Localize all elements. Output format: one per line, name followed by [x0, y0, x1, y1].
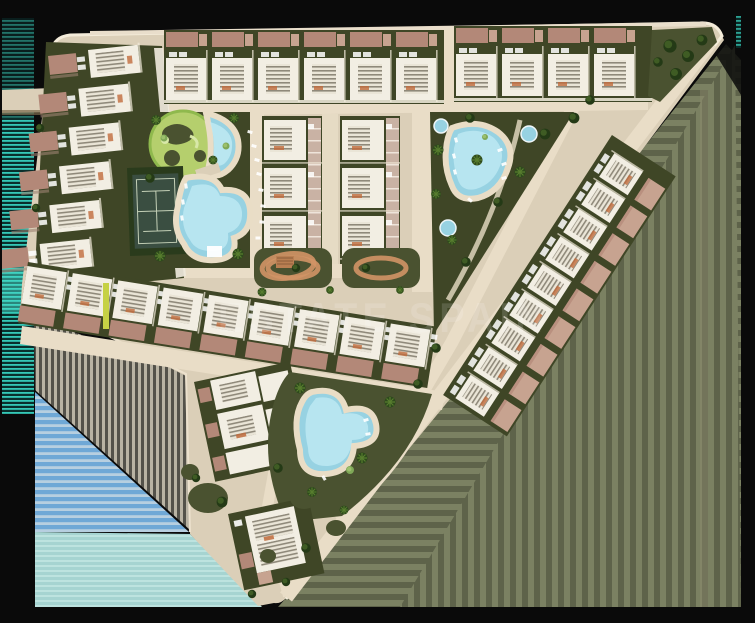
lawn-strip: [103, 283, 109, 329]
round-pool: [521, 126, 537, 142]
apartment-column-2: [340, 116, 400, 264]
round-pool: [434, 119, 448, 133]
south-building: [228, 497, 324, 590]
pool-house: [207, 246, 222, 257]
parking-strip: [386, 118, 399, 262]
north-terrace-row-a: [164, 30, 444, 104]
north-terrace-row-b: [454, 26, 652, 102]
parking-strip: [308, 118, 321, 262]
round-pool: [440, 220, 456, 236]
pocket-park: [342, 248, 420, 288]
apartment-column-1: [262, 116, 322, 264]
pool-island-palm: [472, 155, 483, 166]
site-plan-svg: ESTATE SPAIN: [0, 0, 755, 623]
watermark-text: ESTATE SPAIN: [218, 294, 548, 341]
site-plan-image: ESTATE SPAIN: [0, 0, 755, 623]
